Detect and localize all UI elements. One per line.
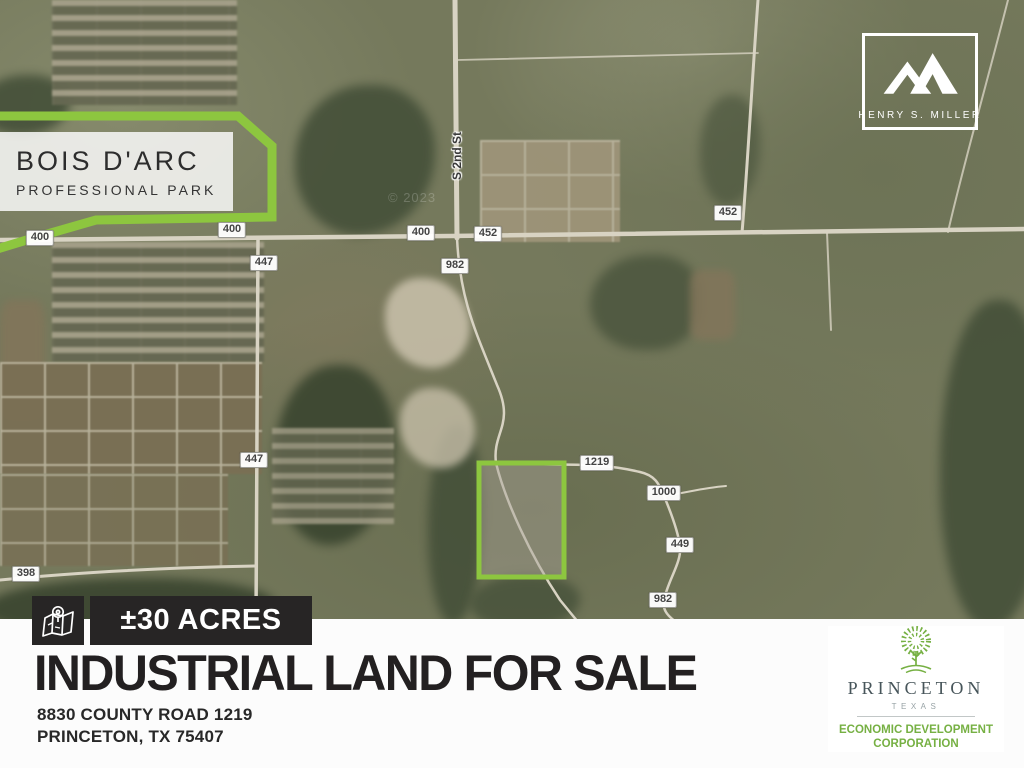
- road-label-447: 447: [240, 452, 268, 468]
- acreage-badge-icon-box: [32, 596, 84, 645]
- road-label-400: 400: [218, 222, 246, 238]
- mountain-m-icon: [878, 43, 962, 101]
- flyer-title: INDUSTRIAL LAND FOR SALE: [34, 648, 696, 698]
- road-label-398: 398: [12, 566, 40, 582]
- road-label-982: 982: [649, 592, 677, 608]
- edc-org-name: ECONOMIC DEVELOPMENT CORPORATION: [839, 723, 993, 752]
- princeton-wordmark: PRINCETON: [848, 678, 985, 699]
- road-label-982: 982: [441, 258, 469, 274]
- flyer-canvas: © 2023 400447400452982452447121910004499…: [0, 0, 1024, 768]
- edc-line-2: CORPORATION: [839, 737, 993, 751]
- edc-line-1: ECONOMIC DEVELOPMENT: [839, 723, 993, 737]
- road-label-400: 400: [26, 230, 54, 246]
- road-label-452: 452: [714, 205, 742, 221]
- henry-s-miller-label: HENRY S. MILLER: [858, 110, 981, 121]
- bois-darc-name: BOIS D'ARC: [16, 146, 233, 177]
- map-pin-icon: [40, 603, 76, 639]
- aerial-map: © 2023 400447400452982452447121910004499…: [0, 0, 1024, 620]
- tree-icon: [892, 626, 940, 676]
- address-line-2: PRINCETON, TX 75407: [37, 726, 253, 748]
- acreage-badge: ±30 ACRES: [90, 596, 312, 645]
- property-address: 8830 COUNTY ROAD 1219 PRINCETON, TX 7540…: [37, 704, 253, 748]
- road-label-447: 447: [250, 255, 278, 271]
- bois-darc-subtitle: PROFESSIONAL PARK: [16, 182, 233, 198]
- road-label-400: 400: [407, 225, 435, 241]
- address-line-1: 8830 COUNTY ROAD 1219: [37, 704, 253, 726]
- bois-darc-label-box: BOIS D'ARC PROFESSIONAL PARK: [0, 132, 233, 211]
- acreage-badge-text: ±30 ACRES: [120, 604, 281, 637]
- road-label-449: 449: [666, 537, 694, 553]
- logo-divider: [857, 716, 975, 717]
- street-name-label: S 2nd St: [450, 111, 464, 201]
- road-label-1000: 1000: [647, 485, 681, 501]
- road-label-452: 452: [474, 226, 502, 242]
- road-label-1219: 1219: [580, 455, 614, 471]
- princeton-edc-logo: PRINCETON TEXAS ECONOMIC DEVELOPMENT COR…: [828, 626, 1004, 752]
- henry-s-miller-logo: HENRY S. MILLER: [862, 33, 978, 130]
- texas-label: TEXAS: [892, 702, 941, 711]
